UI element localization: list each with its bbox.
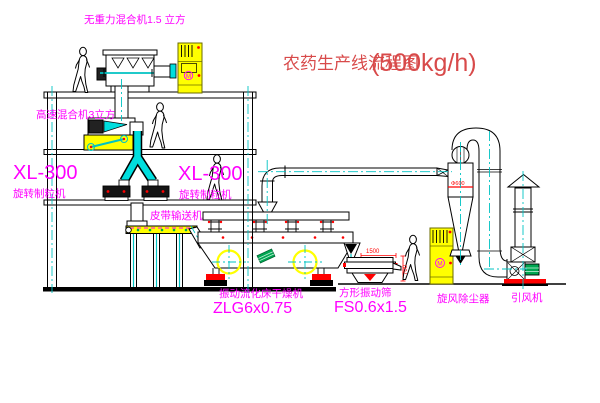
conveyor-support-legs bbox=[131, 234, 183, 288]
fan-motor bbox=[525, 264, 539, 275]
dryer-name-label: 振动流化床干燥机 bbox=[219, 287, 303, 300]
sieve-name-label: 方形振动筛 bbox=[339, 286, 392, 299]
drawing-title-capacity: (500kg/h) bbox=[371, 49, 477, 77]
cyclone-diameter-dimension: Φ600 bbox=[451, 181, 465, 187]
square-vibrating-sieve bbox=[343, 253, 406, 283]
sieve-length-dimension: 1500 bbox=[366, 249, 380, 255]
gravity-free-mixer bbox=[97, 50, 176, 92]
high-speed-mixer-label: 高速混合机3立方 bbox=[36, 108, 115, 121]
belt-conveyor-label: 皮带输送机 bbox=[150, 209, 203, 222]
cyclone-label: 旋风除尘器 bbox=[437, 292, 490, 305]
granulator-left-model-label: XL-300 bbox=[13, 162, 78, 184]
motor-symbol-top: M bbox=[186, 73, 191, 80]
granulator-left bbox=[103, 180, 130, 201]
dryer-foot-left bbox=[204, 268, 227, 286]
gravity-mixer-label: 无重力混合机1.5 立方 bbox=[84, 13, 186, 26]
dryer-exhaust-duct bbox=[258, 166, 448, 213]
granulator-discharge-duct bbox=[127, 203, 147, 226]
fluid-bed-dryer bbox=[198, 212, 353, 286]
dryer-model-label: ZLG6x0.75 bbox=[213, 300, 292, 317]
exhaust-stack bbox=[508, 175, 539, 263]
drawing-canvas: 无重力混合机1.5 立方 农药生产线流程图 (500kg/h) 高速混合机3立方… bbox=[0, 0, 600, 403]
sieve-outlet-dimension: 700 bbox=[403, 264, 409, 275]
granulator-right-name-label: 旋转制粒机 bbox=[179, 188, 232, 201]
granulator-left-name-label: 旋转制粒机 bbox=[13, 187, 66, 200]
dryer-discharge-spout bbox=[344, 243, 360, 258]
belt-conveyor bbox=[126, 226, 198, 234]
sieve-model-label: FS0.6x1.5 bbox=[334, 299, 407, 316]
worker-figure-floor2 bbox=[150, 103, 167, 148]
dryer-duct-stubs bbox=[208, 220, 334, 232]
induced-draft-fan bbox=[502, 259, 548, 286]
fan-label: 引风机 bbox=[511, 291, 543, 304]
production-line-drawing: 无重力混合机1.5 立方 农药生产线流程图 (500kg/h) 高速混合机3立方… bbox=[0, 0, 600, 403]
granulator-right-model-label: XL-300 bbox=[178, 163, 243, 185]
worker-figure-roof bbox=[73, 47, 90, 92]
motor-symbol-right: M bbox=[437, 261, 442, 268]
granulator-right bbox=[142, 180, 169, 201]
control-cabinet-top bbox=[178, 43, 202, 93]
